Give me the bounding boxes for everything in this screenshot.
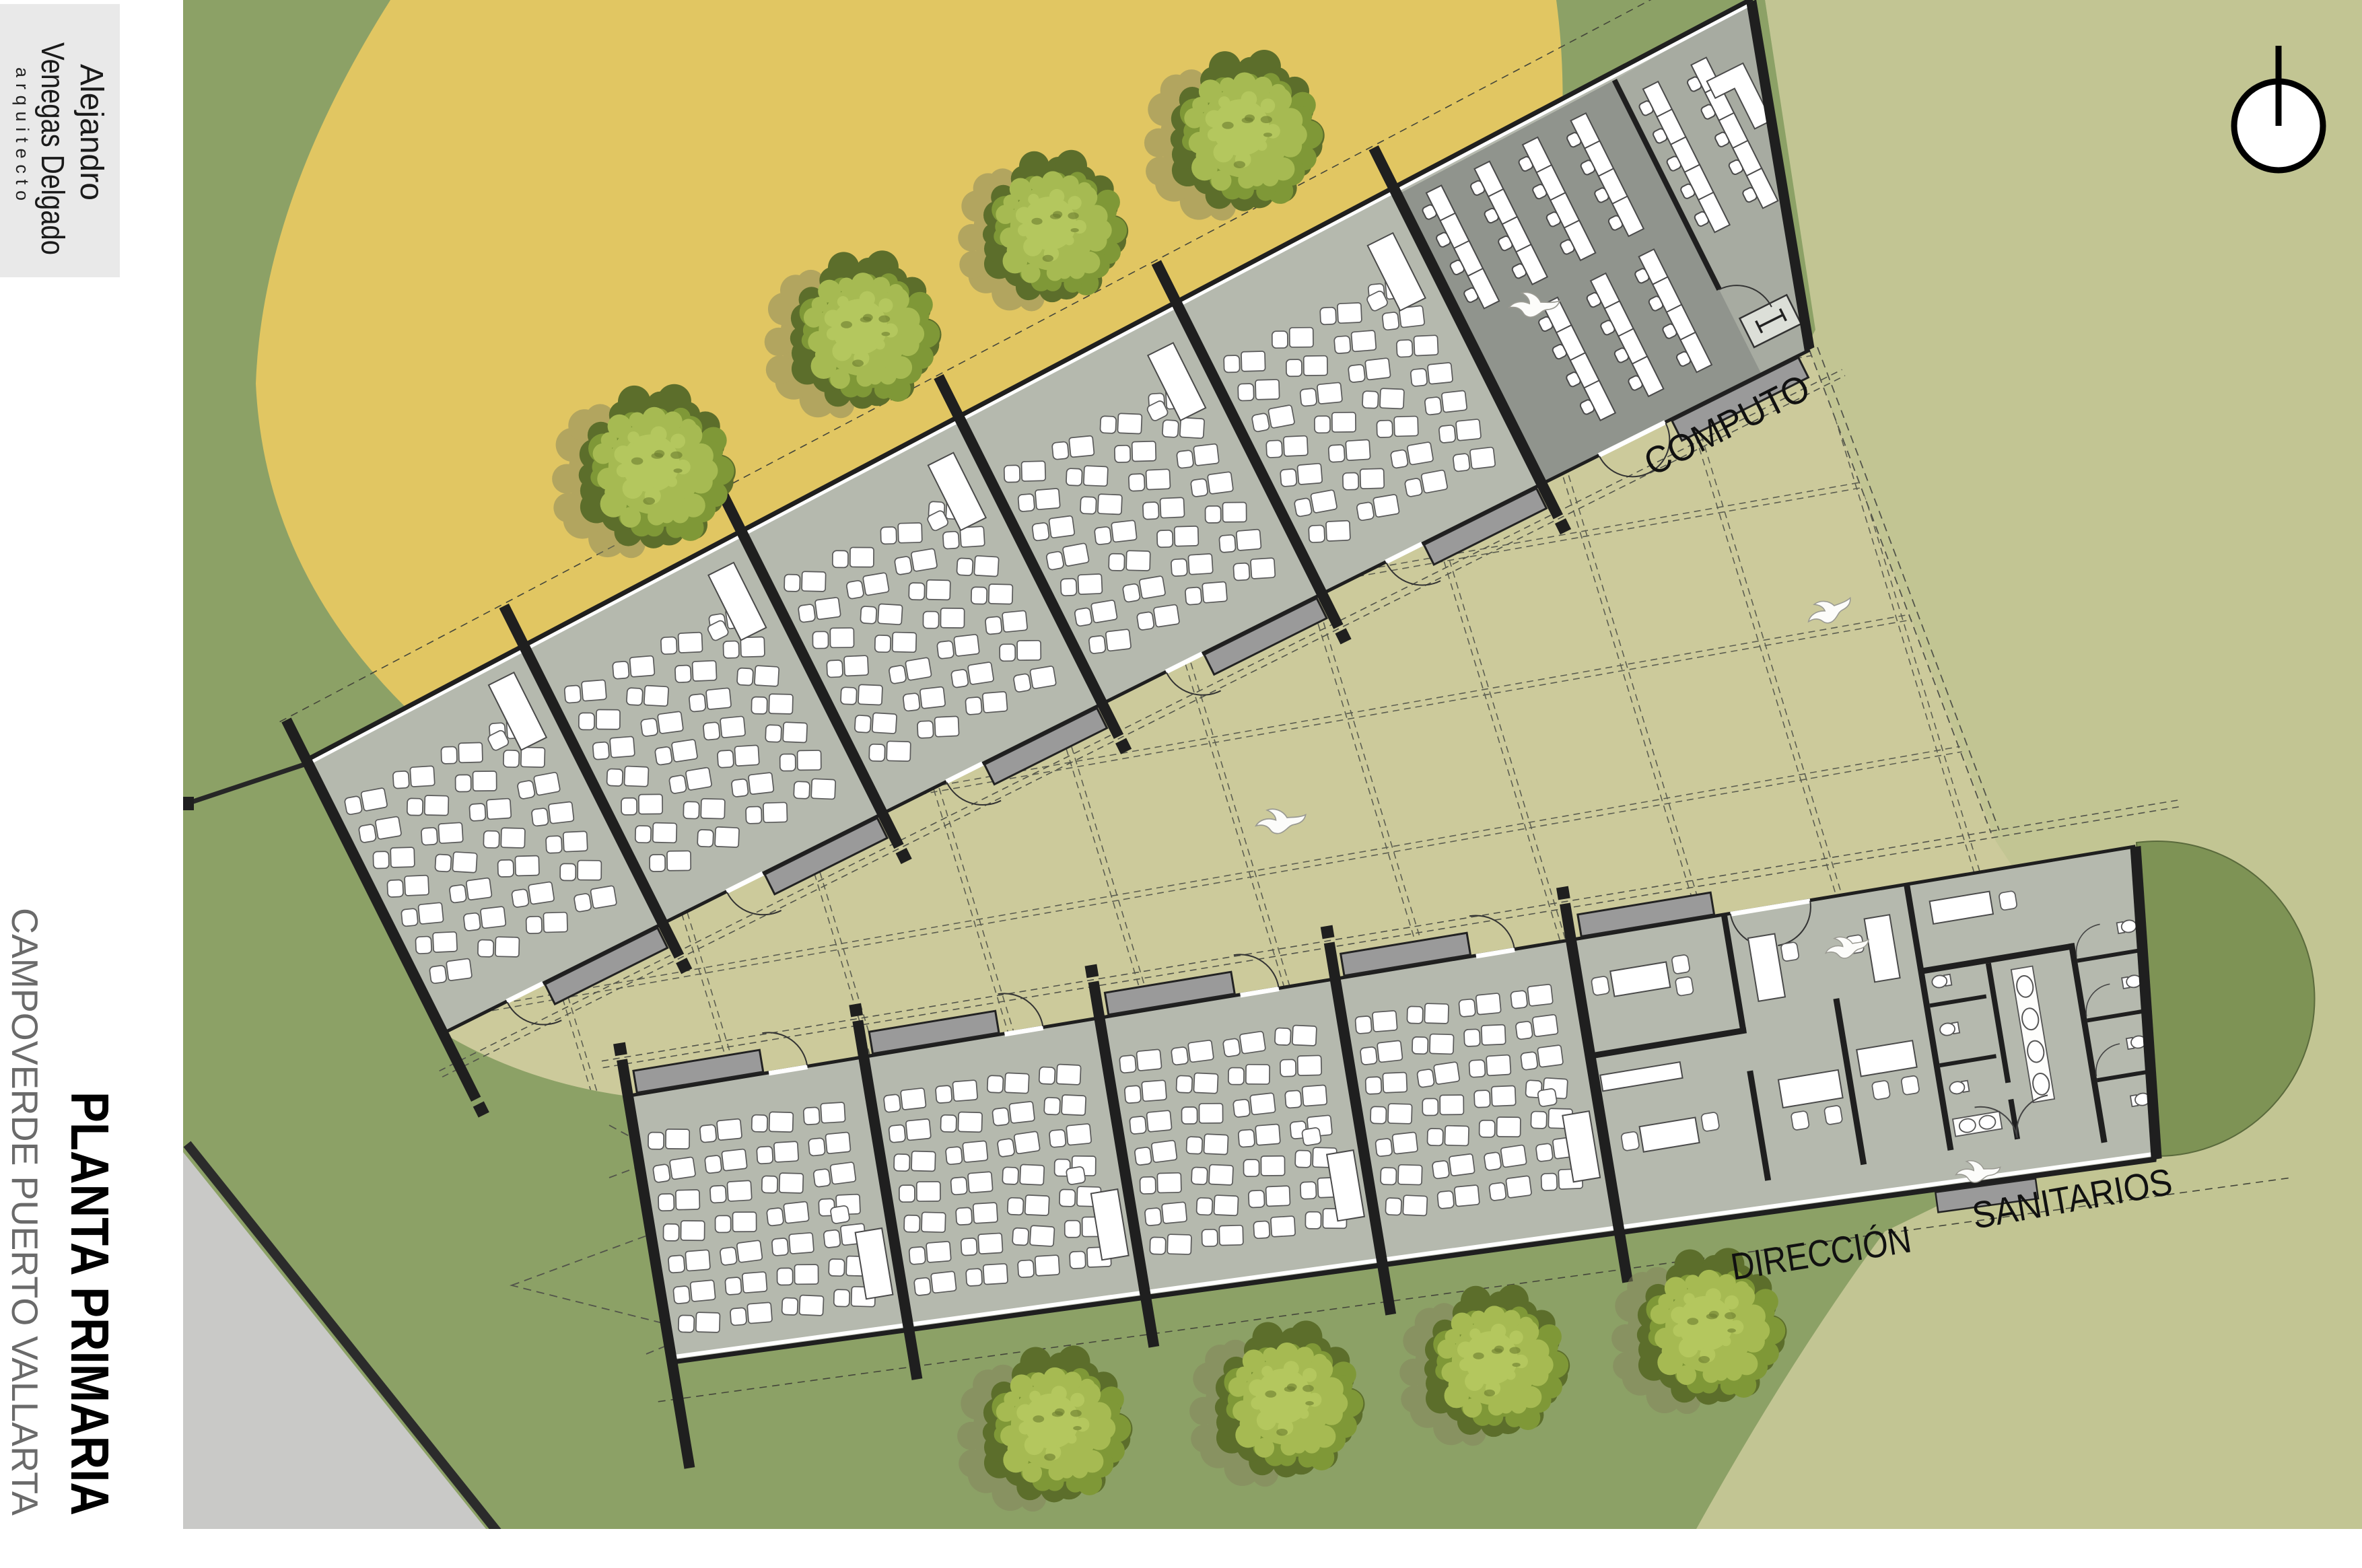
svg-text:Alejandro: Alejandro xyxy=(73,64,109,201)
svg-text:Venegas Delgado: Venegas Delgado xyxy=(34,42,70,255)
svg-text:PLANTA PRIMARIA: PLANTA PRIMARIA xyxy=(60,1092,120,1516)
svg-text:CAMPOVERDE PUERTO VALLARTA: CAMPOVERDE PUERTO VALLARTA xyxy=(4,908,46,1516)
